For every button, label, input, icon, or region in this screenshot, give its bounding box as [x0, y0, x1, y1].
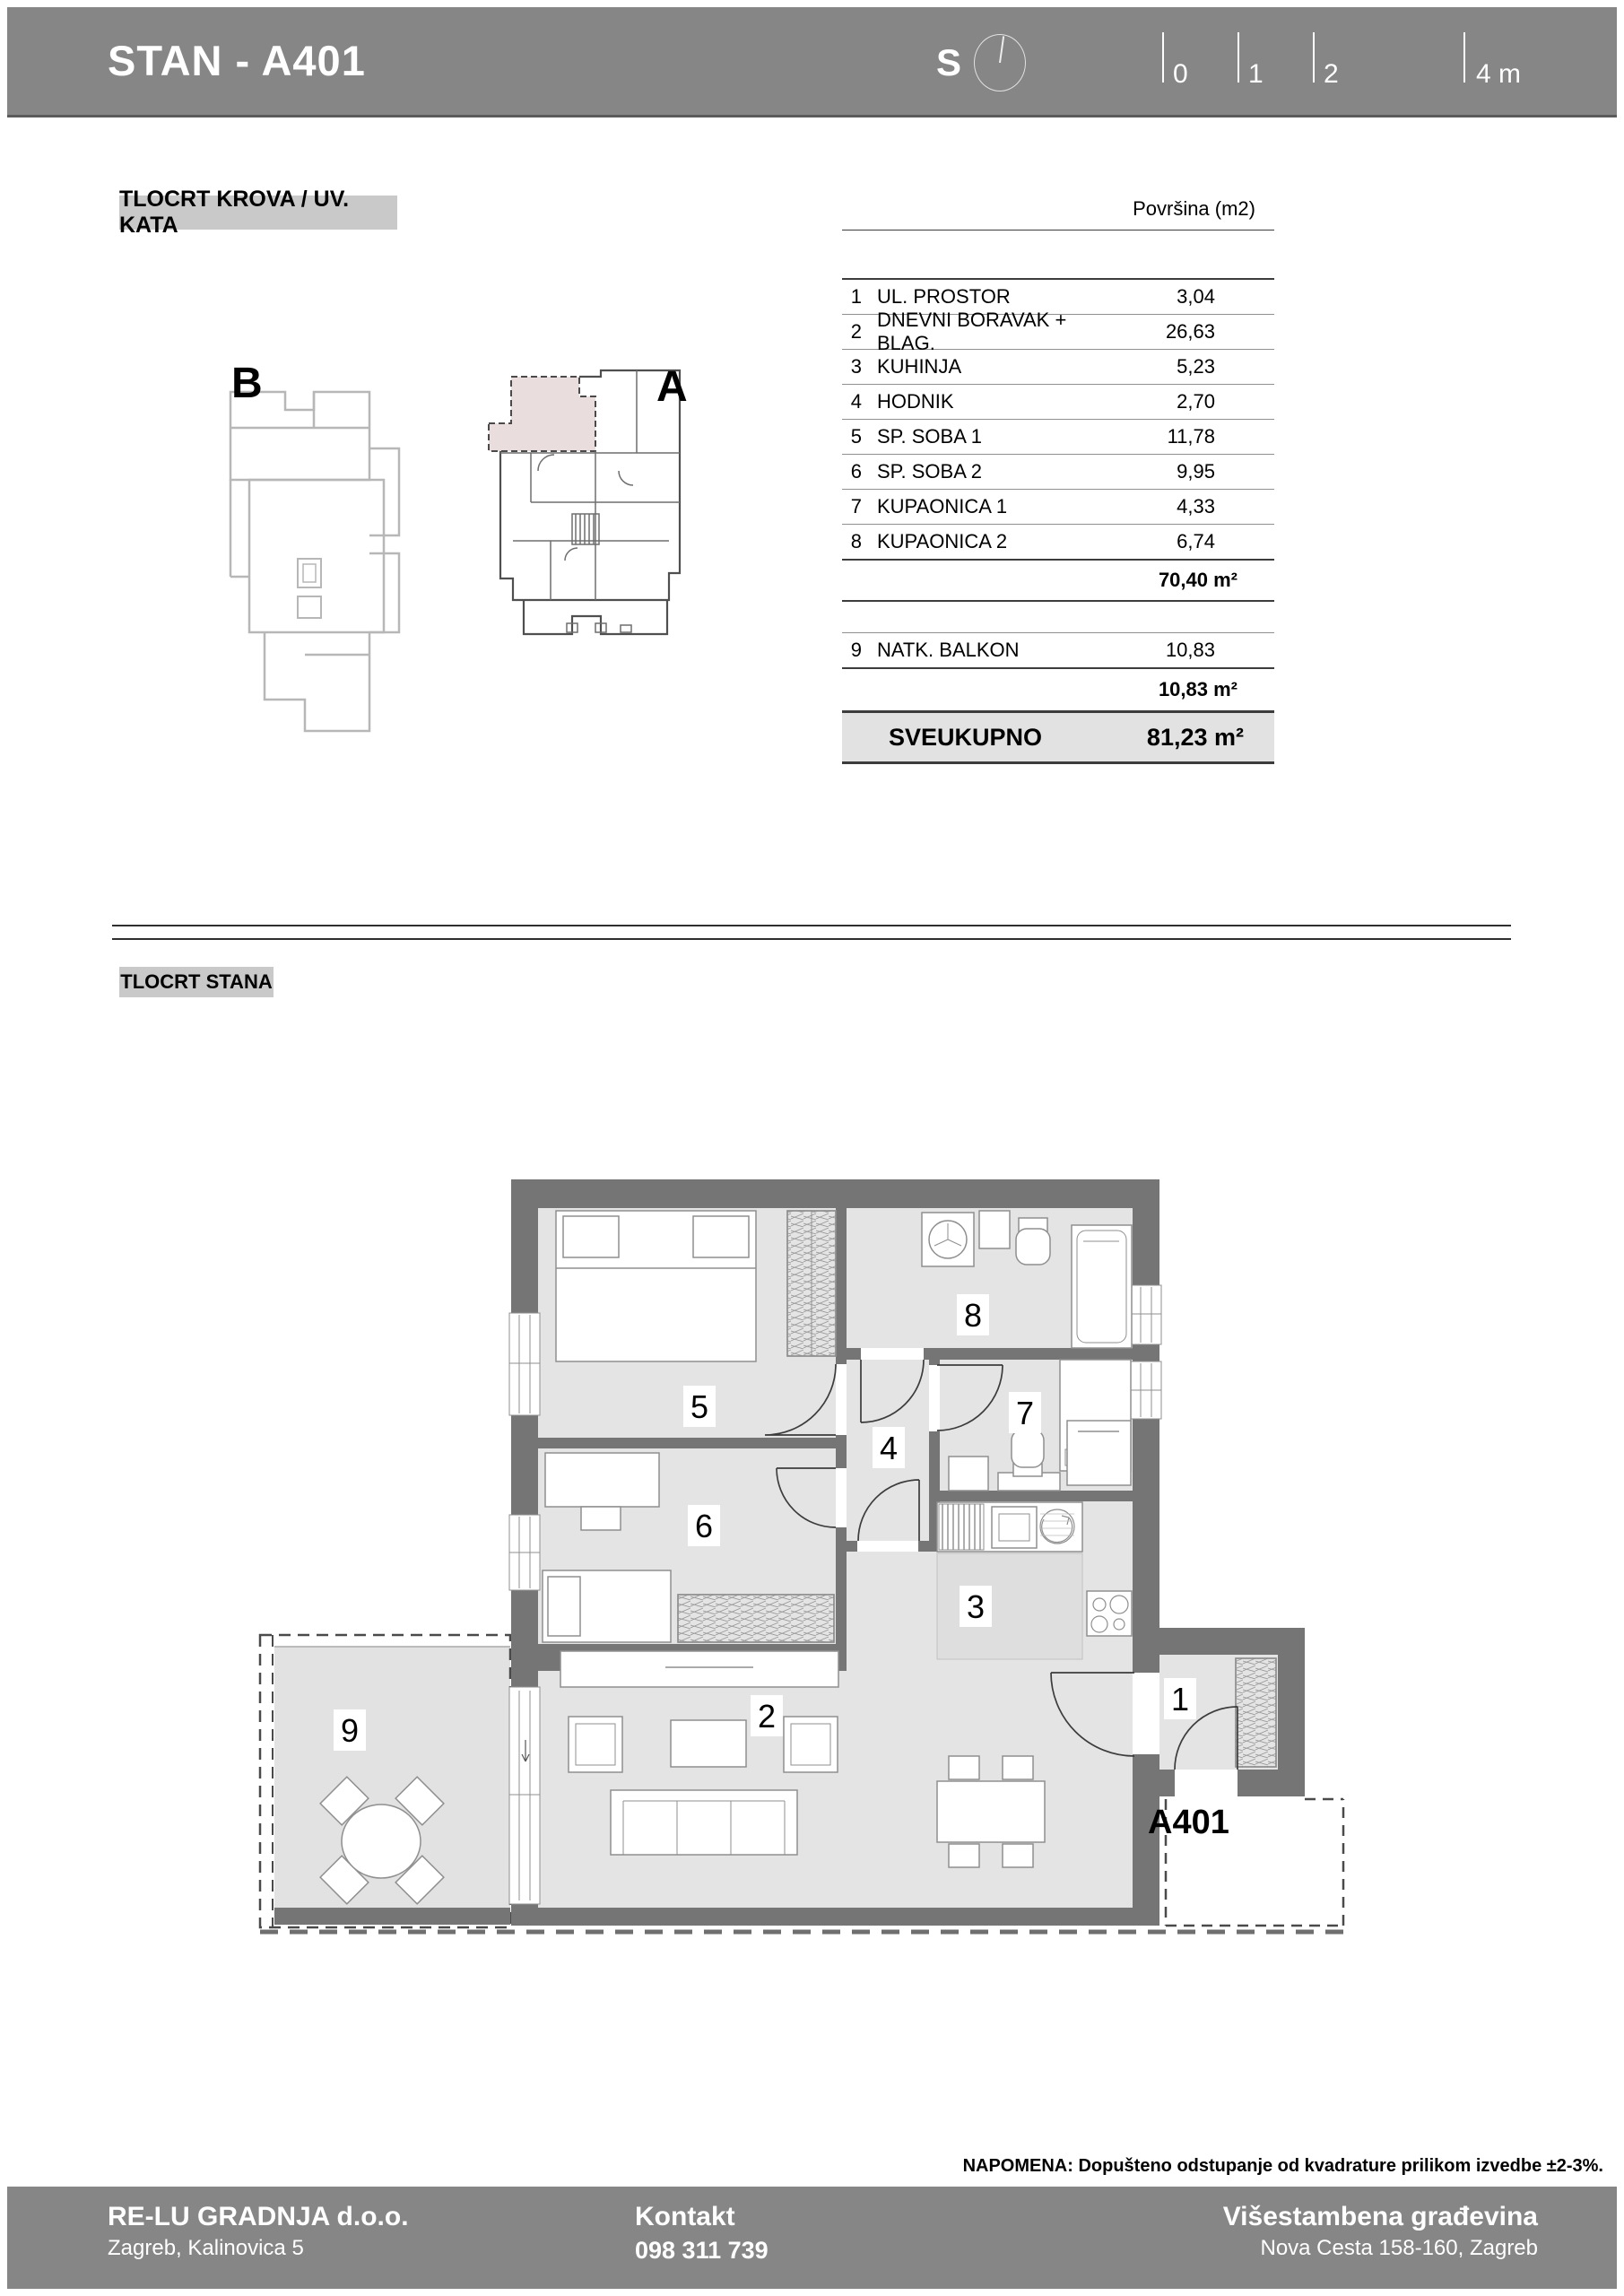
- row-num: 3: [842, 355, 862, 378]
- footer-company-address: Zagreb, Kalinovica 5: [108, 2233, 409, 2264]
- row-area: 5,23: [1116, 355, 1274, 378]
- armchair: [784, 1717, 838, 1772]
- napomena-note: NAPOMENA: Dopušteno odstupanje od kvadra…: [527, 2156, 1603, 2177]
- room-label-5: 5: [690, 1388, 708, 1425]
- row-name: KUPAONICA 2: [862, 530, 1116, 553]
- cooktop: [1087, 1591, 1132, 1636]
- row-num: 4: [842, 390, 862, 413]
- room-label-8: 8: [964, 1297, 982, 1334]
- room-label-6: 6: [695, 1508, 713, 1544]
- row-name: UL. PROSTOR: [862, 285, 1116, 309]
- row-name: NATK. BALKON: [862, 639, 1116, 662]
- table-row: 7KUPAONICA 14,33: [842, 490, 1274, 525]
- entrance-room: [1236, 1658, 1276, 1767]
- footer-contact-block: Kontakt 098 311 739: [635, 2201, 769, 2267]
- room-label-2: 2: [758, 1698, 776, 1735]
- scale-tick-0: [1162, 32, 1164, 83]
- window-room6: [509, 1515, 540, 1590]
- compass-icon: [974, 34, 1026, 91]
- header-bar: STAN - A401 S 0 1 2 4 m: [7, 7, 1617, 117]
- coffee-table: [671, 1720, 746, 1767]
- chair: [581, 1507, 621, 1530]
- table-row: 5SP. SOBA 111,78: [842, 420, 1274, 455]
- row-name: SP. SOBA 1: [862, 425, 1116, 448]
- row-area: 9,95: [1116, 460, 1274, 483]
- floor-plan: 1 2 3 4 5 6 7 8 9 A401: [251, 1162, 1359, 1947]
- unit-plan-section-label: TLOCRT STANA: [119, 967, 274, 997]
- window-room5: [509, 1313, 540, 1415]
- footer-company-block: RE-LU GRADNJA d.o.o. Zagreb, Kalinovica …: [108, 2201, 409, 2264]
- row-num: 9: [842, 639, 862, 662]
- table-row: 8KUPAONICA 26,74: [842, 525, 1274, 559]
- room-label-1: 1: [1171, 1681, 1189, 1718]
- scale-label-0: 0: [1173, 59, 1188, 90]
- table-row: 6SP. SOBA 29,95: [842, 455, 1274, 490]
- scale-tick-4: [1463, 32, 1465, 83]
- row-num: 6: [842, 460, 862, 483]
- footer-company: RE-LU GRADNJA d.o.o.: [108, 2201, 409, 2233]
- row-num: 7: [842, 495, 862, 518]
- row-area: 26,63: [1116, 320, 1274, 344]
- footer-project-address: Nova Cesta 158-160, Zagreb: [1223, 2233, 1538, 2264]
- balcony-subtotal: 10,83 m²: [842, 669, 1274, 710]
- room-label-9: 9: [341, 1712, 359, 1749]
- kitchen-sink: [1040, 1509, 1074, 1544]
- row-name: KUHINJA: [862, 355, 1116, 378]
- footer-project: Višestambena građevina: [1223, 2201, 1538, 2233]
- scale-tick-2: [1313, 32, 1315, 83]
- row-area: 6,74: [1116, 530, 1274, 553]
- row-area: 3,04: [1116, 285, 1274, 309]
- wardrobe: [678, 1595, 834, 1642]
- footer-contact-label: Kontakt: [635, 2201, 769, 2233]
- row-name: KUPAONICA 1: [862, 495, 1116, 518]
- building-b-label: B: [231, 360, 263, 407]
- total-value: 81,23 m²: [1147, 724, 1274, 752]
- building-a-unit-highlight: [489, 377, 595, 451]
- footer-bar: RE-LU GRADNJA d.o.o. Zagreb, Kalinovica …: [7, 2187, 1617, 2289]
- scale-tick-1: [1238, 32, 1239, 83]
- plan-sheet: STAN - A401 S 0 1 2 4 m TLOCRT KROVA / U…: [0, 0, 1624, 2296]
- scale-label-1: 1: [1248, 59, 1264, 90]
- sink: [949, 1457, 988, 1491]
- row-area: 11,78: [1116, 425, 1274, 448]
- sink: [979, 1211, 1010, 1248]
- divider-line: [112, 938, 1511, 940]
- page-title: STAN - A401: [108, 36, 366, 85]
- room-label-4: 4: [880, 1430, 898, 1466]
- total-label: SVEUKUPNO: [842, 724, 1147, 752]
- sideboard: [560, 1651, 838, 1687]
- building-a-plan: [489, 370, 680, 634]
- site-plans: B A: [215, 345, 717, 758]
- kitchen-floor: [937, 1553, 1082, 1659]
- area-table: Površina (m2) 1UL. PROSTOR3,04 2DNEVNI B…: [842, 197, 1274, 764]
- room-label-7: 7: [1016, 1395, 1034, 1431]
- toilet: [1016, 1218, 1050, 1265]
- table-row: 3KUHINJA5,23: [842, 350, 1274, 385]
- row-area: 10,83: [1116, 639, 1274, 662]
- armchair: [569, 1717, 622, 1772]
- area-table-header: Površina (m2): [842, 197, 1274, 230]
- dish-rack: [939, 1504, 984, 1550]
- toilet: [1012, 1430, 1044, 1476]
- total-row: SVEUKUPNO 81,23 m²: [842, 710, 1274, 764]
- sofa: [611, 1790, 797, 1855]
- balcony-row-block: 9NATK. BALKON10,83: [842, 632, 1274, 669]
- bathtub: [1072, 1225, 1132, 1348]
- window-room7: [1131, 1361, 1161, 1419]
- row-name: HODNIK: [862, 390, 1116, 413]
- scale-label-end: 4 m: [1476, 59, 1521, 90]
- table-row: 9NATK. BALKON10,83: [842, 633, 1274, 667]
- wardrobe: [1236, 1658, 1276, 1767]
- row-num: 1: [842, 285, 862, 309]
- compass-needle: [999, 36, 1004, 63]
- area-subtotal: 70,40 m²: [842, 561, 1274, 602]
- window-room8: [1131, 1285, 1161, 1344]
- footer-project-block: Višestambena građevina Nova Cesta 158-16…: [1223, 2201, 1538, 2264]
- divider-line: [112, 925, 1511, 926]
- compass-label: S: [936, 41, 961, 84]
- roof-plan-section-label: TLOCRT KROVA / UV. KATA: [119, 196, 397, 230]
- desk: [545, 1453, 659, 1507]
- table-gap: [842, 602, 1274, 632]
- building-b-plan: [230, 392, 399, 731]
- scale-label-2: 2: [1324, 59, 1339, 90]
- table-row: 4HODNIK2,70: [842, 385, 1274, 420]
- area-table-body: 1UL. PROSTOR3,04 2DNEVNI BORAVAK + BLAG.…: [842, 278, 1274, 561]
- row-name: SP. SOBA 2: [862, 460, 1116, 483]
- row-area: 4,33: [1116, 495, 1274, 518]
- unit-number-label: A401: [1148, 1804, 1229, 1841]
- fridge: [1067, 1421, 1131, 1485]
- row-num: 5: [842, 425, 862, 448]
- row-num: 8: [842, 530, 862, 553]
- footer-contact-phone: 098 311 739: [635, 2233, 769, 2267]
- row-area: 2,70: [1116, 390, 1274, 413]
- row-name: DNEVNI BORAVAK + BLAG.: [862, 309, 1116, 355]
- room-label-3: 3: [967, 1588, 985, 1625]
- room5-furniture: [556, 1211, 836, 1361]
- row-num: 2: [842, 320, 862, 344]
- table-row: 2DNEVNI BORAVAK + BLAG.26,63: [842, 315, 1274, 350]
- balcony-door: [509, 1687, 540, 1904]
- building-a-label: A: [656, 363, 688, 411]
